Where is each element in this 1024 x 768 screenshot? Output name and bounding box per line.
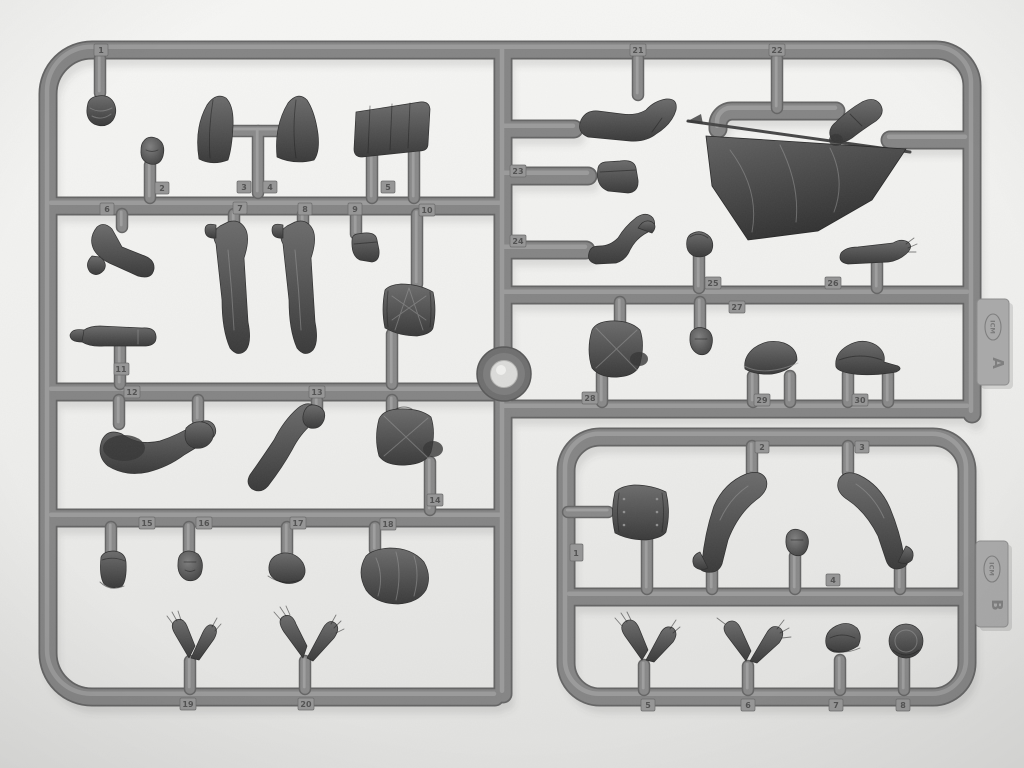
sprue-photo-svg: 1 2 3 4 5 6 7 8 9 10 11 12 13 14 15 16 1…	[0, 0, 1024, 768]
sprue-photo: 1 2 3 4 5 6 7 8 9 10 11 12 13 14 15 16 1…	[0, 0, 1024, 768]
photo-grain-overlay	[0, 0, 1024, 768]
